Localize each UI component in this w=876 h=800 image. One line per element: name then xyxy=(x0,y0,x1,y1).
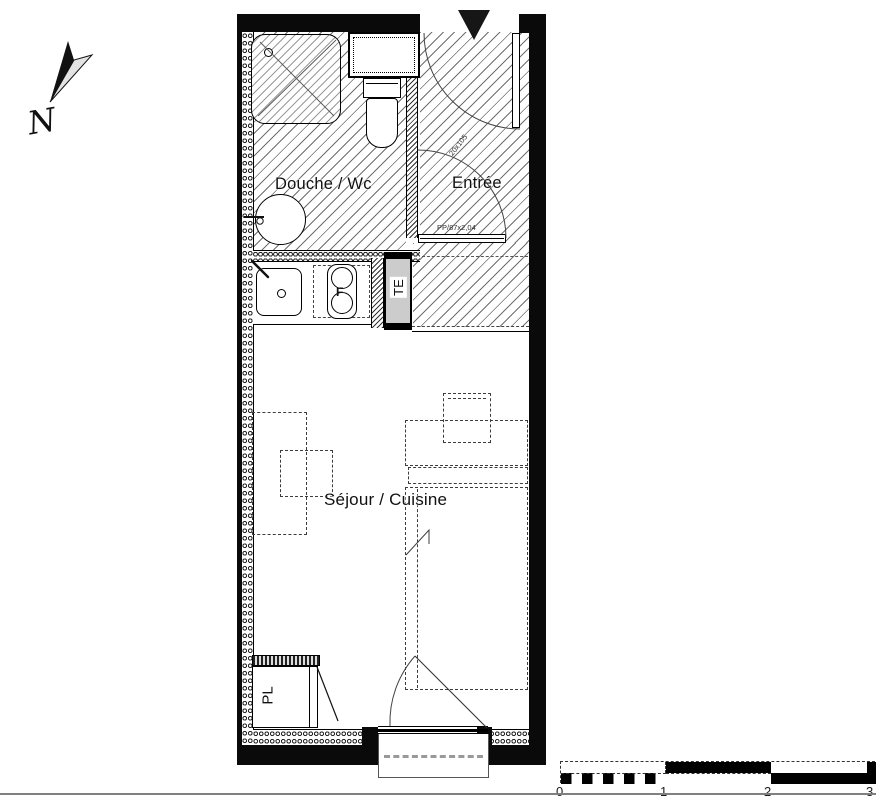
kitchen-sink-drain xyxy=(277,289,286,298)
floor-plan: PP/87x2,04 20x105 F TE PL Douche / Wc En… xyxy=(0,0,876,800)
shower-drain xyxy=(264,48,273,57)
left-wall-inner-line xyxy=(253,32,254,745)
entry-zone-dashed-line xyxy=(422,256,528,257)
scale-seg-bottom-1 xyxy=(561,773,666,784)
right-wall xyxy=(529,14,546,765)
duct-box xyxy=(348,32,420,78)
top-wall-left xyxy=(237,14,420,32)
bottom-wall-left xyxy=(237,745,378,765)
living-zone-solid-line xyxy=(412,331,529,332)
scale-seg-top-1 xyxy=(561,762,666,773)
scale-seg-top-cap xyxy=(867,762,876,773)
pillow-outline xyxy=(408,467,528,484)
hob-label: F xyxy=(336,285,343,299)
nightstand-inner-line xyxy=(448,398,486,399)
duct-box-inner xyxy=(353,37,415,73)
bed-inner-line xyxy=(417,489,418,688)
north-arrow-dark xyxy=(50,41,74,102)
bathroom-label: Douche / Wc xyxy=(275,175,372,194)
balcony-slab xyxy=(378,734,489,778)
window-jamb-left xyxy=(362,727,378,746)
washbasin xyxy=(255,194,306,245)
bottom-insulation-left xyxy=(253,729,378,745)
te-panel: TE xyxy=(384,252,412,330)
scale-tick-3: 3 xyxy=(866,784,873,799)
scale-seg-top-3 xyxy=(771,762,867,773)
scale-seg-bottom-2 xyxy=(666,773,771,784)
scale-seg-bottom-3 xyxy=(771,773,876,784)
bottom-wall-right xyxy=(489,745,546,765)
te-panel-label: TE xyxy=(390,277,407,298)
te-wall-strip xyxy=(371,258,384,328)
closet-back-band xyxy=(252,655,320,666)
scale-seg-top-2 xyxy=(666,762,771,773)
bottom-rule-line xyxy=(0,793,876,795)
closet-door-line xyxy=(309,667,310,727)
north-label: N xyxy=(24,100,60,143)
living-zone-dashed-line xyxy=(412,326,529,327)
north-arrow-light xyxy=(50,55,92,102)
living-label: Séjour / Cuisine xyxy=(324,490,447,510)
bottom-insulation-right xyxy=(489,729,529,745)
wc-bowl xyxy=(366,98,398,148)
nightstand-outline xyxy=(443,393,491,443)
closet-box: PL xyxy=(252,666,318,728)
entry-label: Entrée xyxy=(452,174,502,193)
closet-label: PL xyxy=(260,686,277,704)
left-wall-insulation xyxy=(242,32,253,745)
entry-door-annotation: PP/87x2,04 xyxy=(437,223,476,232)
scale-tick-2: 2 xyxy=(764,784,771,799)
bathroom-door-leaf xyxy=(418,234,506,243)
bed-outline xyxy=(405,487,528,690)
wc-tank-line xyxy=(366,83,398,84)
balcony-dashed-line xyxy=(384,755,483,758)
closet-door-diagonal xyxy=(317,667,338,721)
scale-tick-1: 1 xyxy=(660,784,667,799)
wc-tank xyxy=(363,78,401,98)
shower-tray xyxy=(251,34,341,124)
entrance-door-leaf xyxy=(512,33,520,128)
window-line-1 xyxy=(378,726,488,727)
scale-bar xyxy=(560,761,875,783)
window-line-2 xyxy=(378,729,488,732)
scale-tick-0: 0 xyxy=(556,784,563,799)
bathroom-door-leaf-line xyxy=(420,238,504,239)
